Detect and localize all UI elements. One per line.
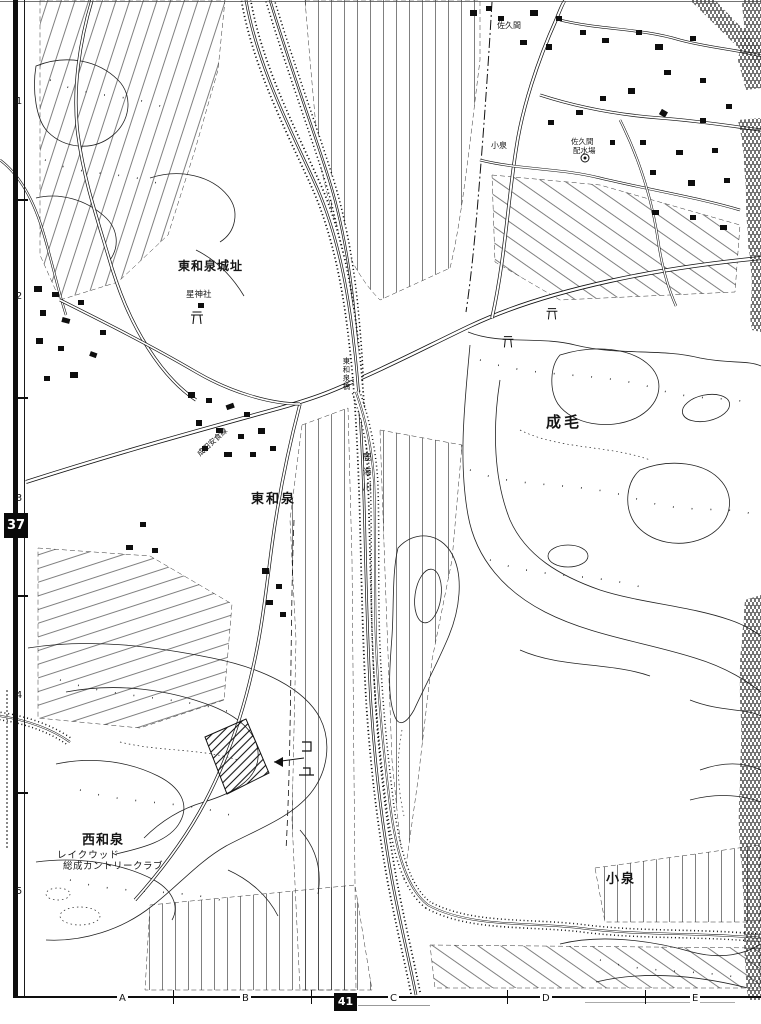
grid-tick xyxy=(13,595,28,597)
margin-annotation xyxy=(6,690,8,850)
topographic-map-sheet: 東和泉城址 星神社 東和泉 成毛 西和泉 レイクウッド 総成カントリークラブ 小… xyxy=(0,0,761,1024)
grid-col-label-a: A xyxy=(117,994,128,1005)
grid-row-label-2: 2 xyxy=(13,292,25,303)
bottom-sub-line xyxy=(358,1005,430,1006)
grid-col-label-c: C xyxy=(388,994,399,1005)
place-label-higashi-izumi: 東和泉 xyxy=(251,493,296,507)
grid-tick xyxy=(507,990,508,1004)
place-label-lakewood-line2: 総成カントリークラブ xyxy=(63,862,163,872)
grid-tick xyxy=(645,990,646,1004)
place-label-water-plant: 配水場 xyxy=(573,147,596,155)
place-label-sakuma-1: 佐久間 xyxy=(497,22,521,30)
place-label-lakewood-line1: レイクウッド xyxy=(57,851,120,861)
river-name-label: 鹿海川 xyxy=(360,452,369,530)
grid-row-label-5: 5 xyxy=(13,887,25,898)
torii-icon xyxy=(191,309,557,348)
grid-col-label-e: E xyxy=(690,994,700,1005)
grid-col-label-b: B xyxy=(240,994,251,1005)
place-label-shrine: 星神社 xyxy=(186,291,212,300)
top-border-line xyxy=(0,1,761,2)
grid-col-label-d: D xyxy=(540,994,552,1005)
bridge-name-label: 東和泉橋 xyxy=(342,357,350,397)
grid-row-label-1: 1 xyxy=(13,97,25,108)
bottom-sub-line-right xyxy=(585,1002,735,1003)
grid-row-label-3: 3 xyxy=(13,494,25,505)
place-label-nishi-izumi: 西和泉 xyxy=(82,834,124,848)
row-index-badge: 37 xyxy=(4,513,28,538)
grid-tick xyxy=(13,199,28,201)
grid-tick xyxy=(13,397,28,399)
col-index-badge: 41 xyxy=(334,993,357,1011)
grid-row-label-4: 4 xyxy=(13,691,25,702)
place-label-koizumi-small: 小泉 xyxy=(491,142,507,150)
place-label-castle-ruins: 東和泉城址 xyxy=(178,260,243,273)
grid-tick xyxy=(173,990,174,1004)
grid-tick xyxy=(13,792,28,794)
grid-tick xyxy=(311,990,312,1004)
place-label-sakuma-2: 佐久間 xyxy=(571,138,594,146)
water-tower-icon xyxy=(581,154,589,162)
place-label-naruke: 成毛 xyxy=(546,415,582,431)
place-label-koizumi: 小泉 xyxy=(606,873,636,887)
